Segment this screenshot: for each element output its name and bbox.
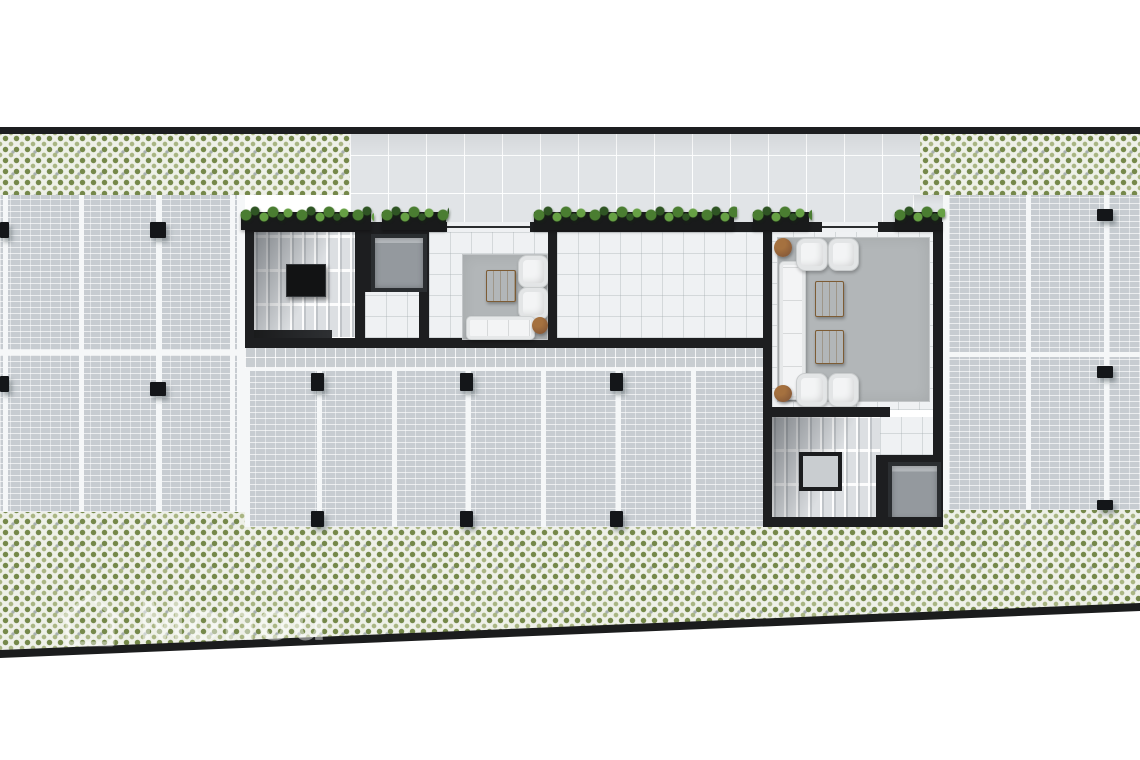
hedge-planter <box>382 212 446 230</box>
parking-divider <box>541 368 546 527</box>
east-armchair-4 <box>828 373 859 407</box>
west-core-west-wall <box>245 222 254 347</box>
walkway-gutter-west <box>237 195 245 512</box>
east-elevator-car <box>888 462 941 523</box>
parking-divider <box>3 195 8 512</box>
parking-row-separator <box>949 352 1140 357</box>
hedge-planter <box>895 212 942 230</box>
east-side-table-2 <box>774 385 792 402</box>
site-north-edge <box>0 127 1140 134</box>
structural-column <box>460 373 473 391</box>
structural-column <box>150 222 166 238</box>
east-elevator-lobby-pocket <box>880 417 933 455</box>
east-coffee-table-1 <box>815 281 844 317</box>
east-stair-north-wall <box>772 407 890 417</box>
west-lounge-east-wall <box>548 232 557 348</box>
structural-column <box>610 511 623 527</box>
parking-block-right <box>949 195 1140 510</box>
green-paver-band-top-left <box>0 133 350 195</box>
structural-column <box>1097 209 1113 221</box>
parking-divider <box>317 368 322 527</box>
parking-divider <box>616 368 621 527</box>
parking-row-separator <box>0 350 237 355</box>
walkway-gutter-east <box>943 195 949 510</box>
middle-hall-south-wall <box>557 338 763 348</box>
west-elevator-car <box>371 234 427 292</box>
parking-divider <box>691 368 696 527</box>
hedge-planter <box>753 212 809 230</box>
east-armchair-1 <box>796 238 828 271</box>
east-stair-landing <box>799 452 842 491</box>
green-paver-band-bottom <box>0 505 1140 658</box>
east-core-south-wall <box>763 517 943 527</box>
parking-block-middle <box>245 368 763 527</box>
parking-divider <box>392 368 397 527</box>
east-coffee-table-2 <box>815 330 844 364</box>
east-armchair-3 <box>796 373 828 407</box>
hedge-planter <box>534 212 734 230</box>
east-lobby-entrance <box>822 222 878 232</box>
structural-column <box>0 222 9 238</box>
green-paver-band-top-right <box>920 133 1140 195</box>
west-stair-void <box>286 264 326 297</box>
west-elevator-lobby-pocket <box>365 292 419 338</box>
parking-divider <box>1026 195 1031 510</box>
glass-door <box>822 226 878 228</box>
east-side-table-1 <box>774 238 792 257</box>
parking-divider <box>466 368 471 527</box>
structural-column <box>1097 366 1113 378</box>
west-side-table <box>532 317 548 334</box>
parking-block-left <box>0 195 237 512</box>
glass-door <box>447 226 530 228</box>
west-lobby-entrance <box>447 222 530 232</box>
structural-column <box>460 511 473 527</box>
structural-column <box>311 373 324 391</box>
structural-column <box>610 373 623 391</box>
structural-column <box>150 382 166 396</box>
east-armchair-2 <box>828 238 859 271</box>
structural-column <box>311 511 324 527</box>
parking-divider <box>156 195 162 512</box>
middle-hall <box>557 232 763 338</box>
east-core-west-wall <box>763 222 772 527</box>
structural-column <box>1097 500 1113 510</box>
west-coffee-table <box>486 270 516 302</box>
hedge-planter <box>241 212 371 230</box>
building-south-walkway <box>245 348 763 368</box>
parking-divider <box>1104 195 1109 510</box>
parking-edge-line <box>245 368 763 371</box>
floor-plan-render: Monod <box>0 0 1140 760</box>
parking-divider <box>230 195 235 512</box>
west-sofa <box>466 316 535 340</box>
west-armchair-1 <box>518 255 549 288</box>
parking-divider <box>79 195 84 512</box>
parking-divider <box>245 368 250 527</box>
structural-column <box>0 376 9 392</box>
